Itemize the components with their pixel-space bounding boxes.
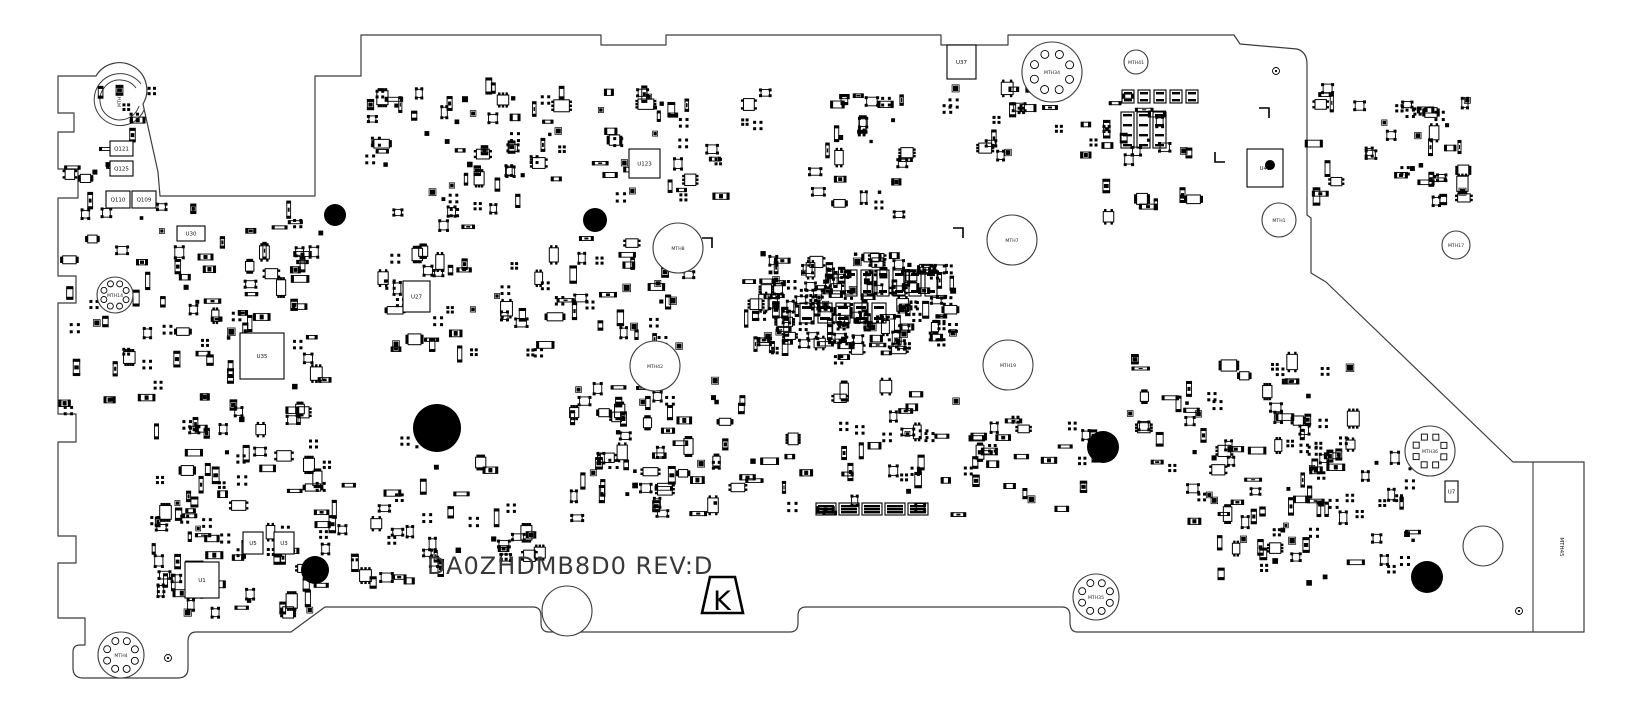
component-footprint [469, 517, 479, 527]
component-footprint [855, 425, 864, 434]
component-footprint [371, 139, 392, 148]
component-footprint [665, 396, 675, 406]
component-footprint [420, 479, 427, 495]
fiducial-dot [1087, 431, 1119, 463]
component-footprint [535, 270, 543, 288]
component-footprint [1347, 559, 1365, 565]
component-footprint [487, 112, 498, 124]
component-footprint [415, 445, 418, 448]
component-footprint [1428, 138, 1433, 156]
component-footprint [604, 128, 617, 135]
component-footprint [1415, 132, 1421, 138]
component-footprint [853, 93, 864, 98]
component-footprint [604, 89, 614, 96]
component-footprint [786, 300, 795, 314]
component-label: U27 [411, 294, 423, 300]
component-footprint [1306, 394, 1311, 399]
alignment-target [1516, 608, 1523, 615]
component-footprint [860, 190, 868, 205]
mount-hole-MTH14: MTH14 [97, 277, 133, 313]
component-footprint [1272, 558, 1278, 564]
component-footprint [498, 545, 510, 552]
component-footprint [314, 521, 330, 528]
connector-footprint [885, 503, 905, 515]
component-footprint [837, 342, 851, 349]
component-footprint [309, 440, 318, 449]
component-footprint [950, 276, 955, 291]
component-footprint [481, 145, 489, 155]
mount-hole-MTH35: MTH35 [1073, 574, 1119, 620]
component-footprint [830, 101, 845, 109]
component-footprint [175, 501, 180, 506]
component-footprint [1347, 409, 1359, 429]
component-cluster [951, 416, 1100, 517]
component-label: Q109 [137, 197, 152, 203]
component-footprint [220, 533, 230, 543]
component-footprint [218, 481, 226, 489]
mount-hole-label: MTH34 [1044, 70, 1060, 76]
component-footprint [840, 381, 848, 402]
component-footprint [274, 451, 294, 461]
component-footprint [113, 361, 118, 376]
component-footprint [578, 396, 592, 406]
component-footprint [201, 339, 209, 347]
component-footprint [1289, 537, 1296, 544]
component-footprint [200, 393, 210, 400]
component-footprint [398, 96, 402, 113]
component-footprint [739, 395, 745, 406]
component-footprint [831, 200, 848, 208]
component-footprint [631, 323, 638, 330]
component-footprint [798, 339, 810, 349]
component-footprint [393, 341, 400, 348]
mount-hole-MTH10: MTH10 [117, 91, 123, 107]
component-footprint [198, 254, 214, 261]
component-footprint [446, 306, 453, 313]
component-U30: U30 [177, 226, 205, 241]
component-footprint [300, 257, 306, 273]
component-footprint [1325, 160, 1331, 177]
component-footprint [874, 200, 883, 209]
component-footprint [262, 242, 266, 260]
component-footprint [1433, 175, 1436, 178]
component-footprint [351, 554, 359, 572]
component-footprint [918, 455, 925, 471]
component-footprint [449, 194, 459, 204]
component-footprint [1263, 383, 1272, 400]
component-footprint [874, 283, 883, 295]
component-footprint [555, 296, 564, 305]
mount-hole-label: MTH14 [107, 293, 123, 299]
component-footprint [906, 489, 911, 494]
component-footprint [912, 313, 921, 322]
component-footprint [1439, 194, 1447, 205]
component-footprint [621, 160, 627, 166]
component-footprint [854, 252, 857, 255]
component-footprint [154, 554, 164, 568]
component-footprint [455, 148, 466, 152]
component-footprint [447, 506, 454, 518]
component-footprint [152, 543, 156, 555]
component-footprint [184, 609, 191, 616]
board-outline [58, 35, 1584, 678]
component-footprint [907, 263, 911, 267]
component-footprint [1089, 138, 1097, 146]
component-footprint [424, 338, 439, 342]
component-footprint [1312, 100, 1329, 110]
component-footprint [834, 125, 839, 142]
component-footprint [66, 286, 73, 300]
component-footprint [1257, 539, 1263, 556]
component-footprint [1419, 163, 1424, 168]
component-footprint [953, 398, 960, 405]
component-footprint [608, 459, 618, 469]
component-footprint [225, 450, 229, 454]
mount-hole-label: MTH10 [117, 91, 123, 107]
component-footprint [679, 193, 687, 201]
component-footprint [206, 354, 213, 366]
component-footprint [558, 145, 566, 153]
component-cluster [808, 93, 916, 218]
component-footprint [400, 436, 409, 445]
component-footprint [799, 469, 813, 476]
component-footprint [750, 459, 755, 464]
component-cluster [154, 554, 313, 618]
component-footprint [110, 397, 114, 401]
component-footprint [148, 87, 156, 95]
component-footprint [1180, 148, 1187, 155]
component-footprint [1022, 488, 1027, 499]
component-footprint [199, 476, 204, 494]
connector-footprint [1170, 90, 1182, 103]
component-footprint [185, 449, 203, 457]
component-footprint [889, 410, 898, 422]
component-footprint [676, 416, 692, 424]
component-footprint [616, 430, 620, 434]
component-footprint [1134, 193, 1150, 204]
component-footprint [782, 339, 789, 356]
component-footprint [898, 408, 913, 414]
component-footprint [557, 298, 575, 302]
component-footprint [1308, 446, 1318, 456]
component-footprint [619, 326, 628, 339]
mount-hole-label: MTH17 [1448, 243, 1464, 249]
component-footprint [1213, 400, 1223, 410]
component-footprint [384, 279, 387, 282]
component-footprint [63, 169, 78, 179]
component-footprint [159, 228, 164, 233]
component-footprint [253, 313, 271, 321]
component-footprint [774, 261, 779, 274]
component-footprint [211, 607, 220, 619]
alignment-target [165, 655, 172, 662]
component-footprint [787, 502, 797, 512]
component-footprint [205, 463, 211, 476]
mount-hole-MTH42: MTH42 [630, 341, 680, 391]
mount-hole [1463, 526, 1503, 566]
component-footprint [599, 485, 605, 503]
component-footprint [319, 530, 328, 539]
component-footprint [507, 504, 516, 513]
component-footprint [291, 275, 310, 283]
mount-hole-MTH41: MTH41 [1124, 50, 1148, 74]
component-footprint [441, 197, 445, 201]
component-footprint [641, 85, 647, 102]
component-footprint [1209, 465, 1227, 475]
mount-hole-MTH19: MTH19 [983, 340, 1033, 390]
component-footprint [1361, 470, 1370, 482]
component-footprint [877, 101, 893, 108]
component-footprint [173, 351, 180, 368]
mount-hole-label: MTH36 [1422, 449, 1438, 455]
component-footprint [541, 95, 550, 104]
mount-hole-MTH34: MTH34 [1022, 42, 1082, 102]
component-footprint [659, 299, 663, 303]
component-footprint [457, 345, 462, 362]
component-footprint [142, 360, 152, 370]
component-cluster [760, 378, 959, 515]
component-footprint [682, 174, 698, 185]
component-footprint [1184, 416, 1195, 426]
edge-tab-label: MTH45 [1558, 537, 1564, 557]
component-footprint [189, 304, 199, 316]
component-footprint [786, 433, 801, 445]
component-footprint [1195, 411, 1201, 417]
component-footprint [753, 336, 757, 352]
component-footprint [1101, 142, 1113, 149]
component-footprint [236, 454, 245, 463]
component-footprint [1280, 528, 1285, 533]
board-drawing: Q121Q125Q110Q109U30U35U27U123U37U45U1U5U… [0, 0, 1636, 728]
component-footprint [1293, 496, 1308, 504]
component-footprint [253, 447, 267, 457]
component-footprint [633, 469, 637, 473]
component-cluster [592, 85, 772, 202]
component-footprint [1326, 464, 1345, 471]
component-footprint [1041, 457, 1057, 464]
component-footprint [1328, 177, 1344, 185]
component-footprint [712, 193, 729, 200]
component-footprint [394, 104, 398, 108]
component-footprint [951, 512, 967, 517]
component-U35: U35 [240, 333, 284, 379]
component-footprint [941, 305, 959, 314]
component-footprint [433, 269, 445, 277]
component-footprint [1227, 446, 1244, 452]
component-footprint [909, 300, 917, 308]
component-footprint [179, 466, 196, 476]
component-footprint [292, 303, 307, 310]
component-footprint [470, 111, 476, 117]
component-footprint [632, 483, 638, 489]
component-footprint [825, 143, 829, 159]
component-footprint [1127, 411, 1133, 417]
component-footprint [1014, 454, 1029, 459]
component-footprint [163, 325, 173, 335]
component-footprint [511, 533, 526, 541]
component-footprint [277, 277, 286, 298]
component-footprint [1318, 419, 1327, 428]
component-footprint [202, 518, 212, 528]
component-cluster [1405, 106, 1466, 207]
component-footprint [841, 446, 847, 460]
component-footprint [1260, 564, 1268, 572]
component-footprint [1346, 494, 1355, 503]
component-footprint [303, 353, 314, 365]
component-label: U35 [256, 354, 268, 360]
component-footprint [1103, 209, 1113, 225]
component-footprint [392, 208, 403, 216]
component-footprint [287, 489, 303, 493]
component-footprint [1291, 416, 1306, 425]
connector-footprint [1154, 90, 1166, 103]
component-footprint [1290, 552, 1301, 562]
component-footprint [174, 245, 185, 259]
component-footprint [422, 513, 432, 523]
component-footprint [759, 279, 774, 284]
component-footprint [497, 92, 508, 107]
component-footprint [60, 256, 79, 264]
component-footprint [741, 118, 748, 125]
component-footprint [1187, 518, 1201, 525]
component-footprint [542, 120, 553, 124]
component-footprint [714, 400, 719, 405]
component-U5: U5 [243, 532, 263, 554]
component-footprint [511, 262, 519, 270]
component-footprint [1353, 100, 1366, 111]
component-footprint [526, 349, 534, 357]
mount-hole-MTH17: MTH17 [1442, 231, 1470, 259]
component-footprint [494, 293, 499, 298]
component-footprint [811, 187, 826, 197]
mount-hole-label: MTH8 [671, 246, 684, 252]
component-footprint [972, 456, 978, 469]
component-footprint [204, 428, 210, 439]
component-footprint [1212, 455, 1217, 460]
component-footprint [1432, 196, 1441, 207]
component-footprint [515, 194, 520, 208]
component-footprint [285, 406, 299, 413]
component-footprint [896, 158, 908, 168]
component-footprint [990, 421, 999, 433]
component-footprint [660, 102, 664, 106]
component-footprint [795, 305, 799, 317]
component-footprint [1200, 428, 1206, 443]
component-footprint [922, 301, 929, 319]
component-footprint [841, 337, 847, 343]
component-footprint [1135, 108, 1154, 112]
component-U37: U37 [947, 45, 976, 79]
component-footprint [455, 119, 460, 124]
mount-hole-MTH4: MTH4 [98, 632, 144, 678]
component-footprint [185, 508, 196, 513]
component-cluster [1186, 483, 1421, 586]
component-footprint [1365, 147, 1374, 158]
component-footprint [293, 251, 311, 257]
connector-footprint [816, 503, 836, 515]
component-footprint [234, 606, 248, 610]
component-footprint [1410, 166, 1415, 171]
component-footprint [160, 296, 166, 307]
component-footprint [844, 297, 853, 306]
component-footprint [1058, 444, 1073, 448]
component-footprint [673, 157, 683, 170]
component-footprint [669, 297, 676, 304]
component-footprint [156, 476, 164, 484]
connector-footprint [862, 503, 882, 515]
component-footprint [314, 510, 330, 516]
component-footprint [1131, 366, 1149, 370]
component-footprint [124, 349, 136, 366]
mount-hole-MTH7: MTH7 [987, 215, 1037, 265]
component-footprint [986, 460, 999, 468]
component-footprint [784, 454, 795, 459]
component-footprint [996, 150, 1005, 162]
component-footprint [1305, 140, 1323, 148]
component-footprint [292, 384, 297, 389]
component-footprint [1405, 530, 1421, 535]
component-footprint [93, 320, 100, 327]
mount-hole-MTH36: MTH36 [1405, 426, 1455, 476]
component-footprint [889, 252, 900, 259]
component-footprint [661, 428, 675, 434]
component-footprint [449, 183, 454, 188]
component-footprint [643, 415, 651, 430]
component-footprint [470, 348, 478, 356]
component-footprint [1330, 93, 1334, 112]
component-footprint [1399, 497, 1403, 510]
component-footprint [684, 436, 693, 457]
component-footprint [667, 102, 675, 117]
component-footprint [237, 475, 247, 485]
component-footprint [1078, 457, 1086, 465]
component-footprint [835, 148, 843, 168]
component-footprint [1080, 481, 1087, 493]
component-footprint [1137, 421, 1150, 432]
component-footprint [220, 236, 225, 249]
component-footprint [545, 313, 566, 321]
component-footprint [1151, 460, 1164, 465]
component-footprint [656, 446, 665, 459]
component-footprint [78, 174, 94, 182]
component-label: U1 [198, 578, 206, 584]
component-footprint [745, 478, 763, 483]
component-footprint [367, 99, 374, 110]
component-footprint [869, 258, 885, 267]
component-footprint [129, 128, 136, 143]
component-footprint [1405, 479, 1415, 489]
component-footprint [227, 336, 231, 340]
component-footprint [1457, 140, 1461, 154]
component-footprint [580, 472, 585, 489]
component-footprint [859, 442, 864, 459]
component-label: Q110 [111, 197, 126, 203]
component-footprint [615, 402, 625, 421]
component-footprint [313, 468, 322, 488]
component-footprint [1207, 392, 1216, 401]
component-footprint [1382, 120, 1387, 125]
component-footprint [891, 118, 895, 122]
certification-mark: K [702, 577, 743, 617]
component-footprint [838, 354, 850, 360]
component-footprint [98, 86, 104, 99]
component-footprint [1232, 541, 1239, 557]
component-footprint [415, 87, 423, 99]
component-footprint [453, 491, 469, 496]
component-footprint [1055, 125, 1063, 133]
component-footprint [1309, 528, 1319, 538]
mount-hole-label: MTH42 [647, 364, 663, 370]
